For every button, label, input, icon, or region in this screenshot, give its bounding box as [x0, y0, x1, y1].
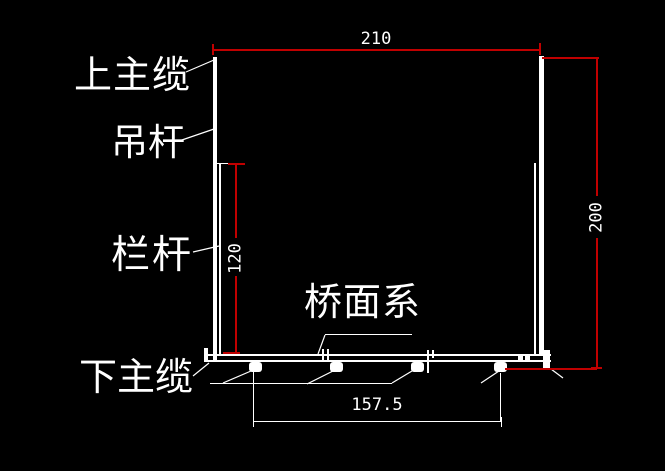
deck-joint-plate — [525, 355, 530, 362]
clamp-leader — [223, 371, 251, 383]
deck-end-leader — [551, 369, 563, 378]
right-hanger-member — [539, 56, 544, 356]
deck-joint-tick — [322, 349, 324, 362]
dim-ext-200-bottom — [505, 368, 597, 370]
dimension-text-clamp-spacing: 157.5 — [347, 397, 407, 414]
deck-joint-tick — [432, 350, 434, 358]
clamp-leader — [392, 371, 412, 383]
deck-right-end-block — [543, 350, 550, 368]
dim-tick — [228, 163, 245, 165]
dim-tick-white — [501, 417, 502, 427]
cable-clamp — [249, 362, 262, 372]
label-lower-main-cable: 下主缆 — [79, 359, 193, 397]
clamp-leader-line — [210, 383, 392, 384]
deck-left-end-post — [204, 348, 208, 362]
dim-ext-157-right — [500, 373, 501, 422]
dim-line-200-lower — [596, 238, 598, 369]
dim-ext-157-left — [253, 372, 254, 422]
label-railing: 栏杆 — [111, 236, 193, 275]
deck-joint-tick — [327, 349, 329, 362]
left-railing-member — [219, 163, 221, 356]
lower-cable-leader — [193, 363, 209, 376]
cable-clamp — [330, 362, 343, 372]
deck-joint-tick — [427, 350, 429, 373]
label-deck-system: 桥面系 — [304, 284, 421, 322]
dim-line-210 — [213, 49, 541, 51]
cable-clamp — [411, 362, 424, 372]
dim-line-120-lower — [235, 276, 237, 354]
dim-tick — [212, 44, 214, 55]
label-hanger-rod: 吊杆 — [111, 124, 185, 161]
dimension-text-top-width: 210 — [356, 31, 396, 48]
cable-clamp — [494, 362, 507, 372]
dim-line-200-upper — [596, 57, 598, 196]
dim-tick — [223, 352, 240, 354]
clamp-leader — [481, 371, 499, 383]
left-hanger-member — [213, 57, 217, 360]
cad-drawing-canvas: 上主缆 吊杆 栏杆 下主缆 桥面系 210 200 120 157.5 — [0, 0, 665, 471]
right-railing-member — [534, 163, 536, 355]
dim-line-120-upper — [235, 164, 237, 238]
deck-label-underline — [325, 334, 412, 335]
dim-tick — [539, 43, 541, 55]
deck-top-chord — [204, 354, 551, 356]
dim-ext-200-top — [542, 57, 599, 59]
dimension-text-right-height: 200 — [589, 193, 606, 243]
dim-line-157 — [253, 421, 502, 422]
deck-joint-plate — [518, 355, 523, 362]
label-upper-main-cable: 上主缆 — [74, 57, 191, 95]
